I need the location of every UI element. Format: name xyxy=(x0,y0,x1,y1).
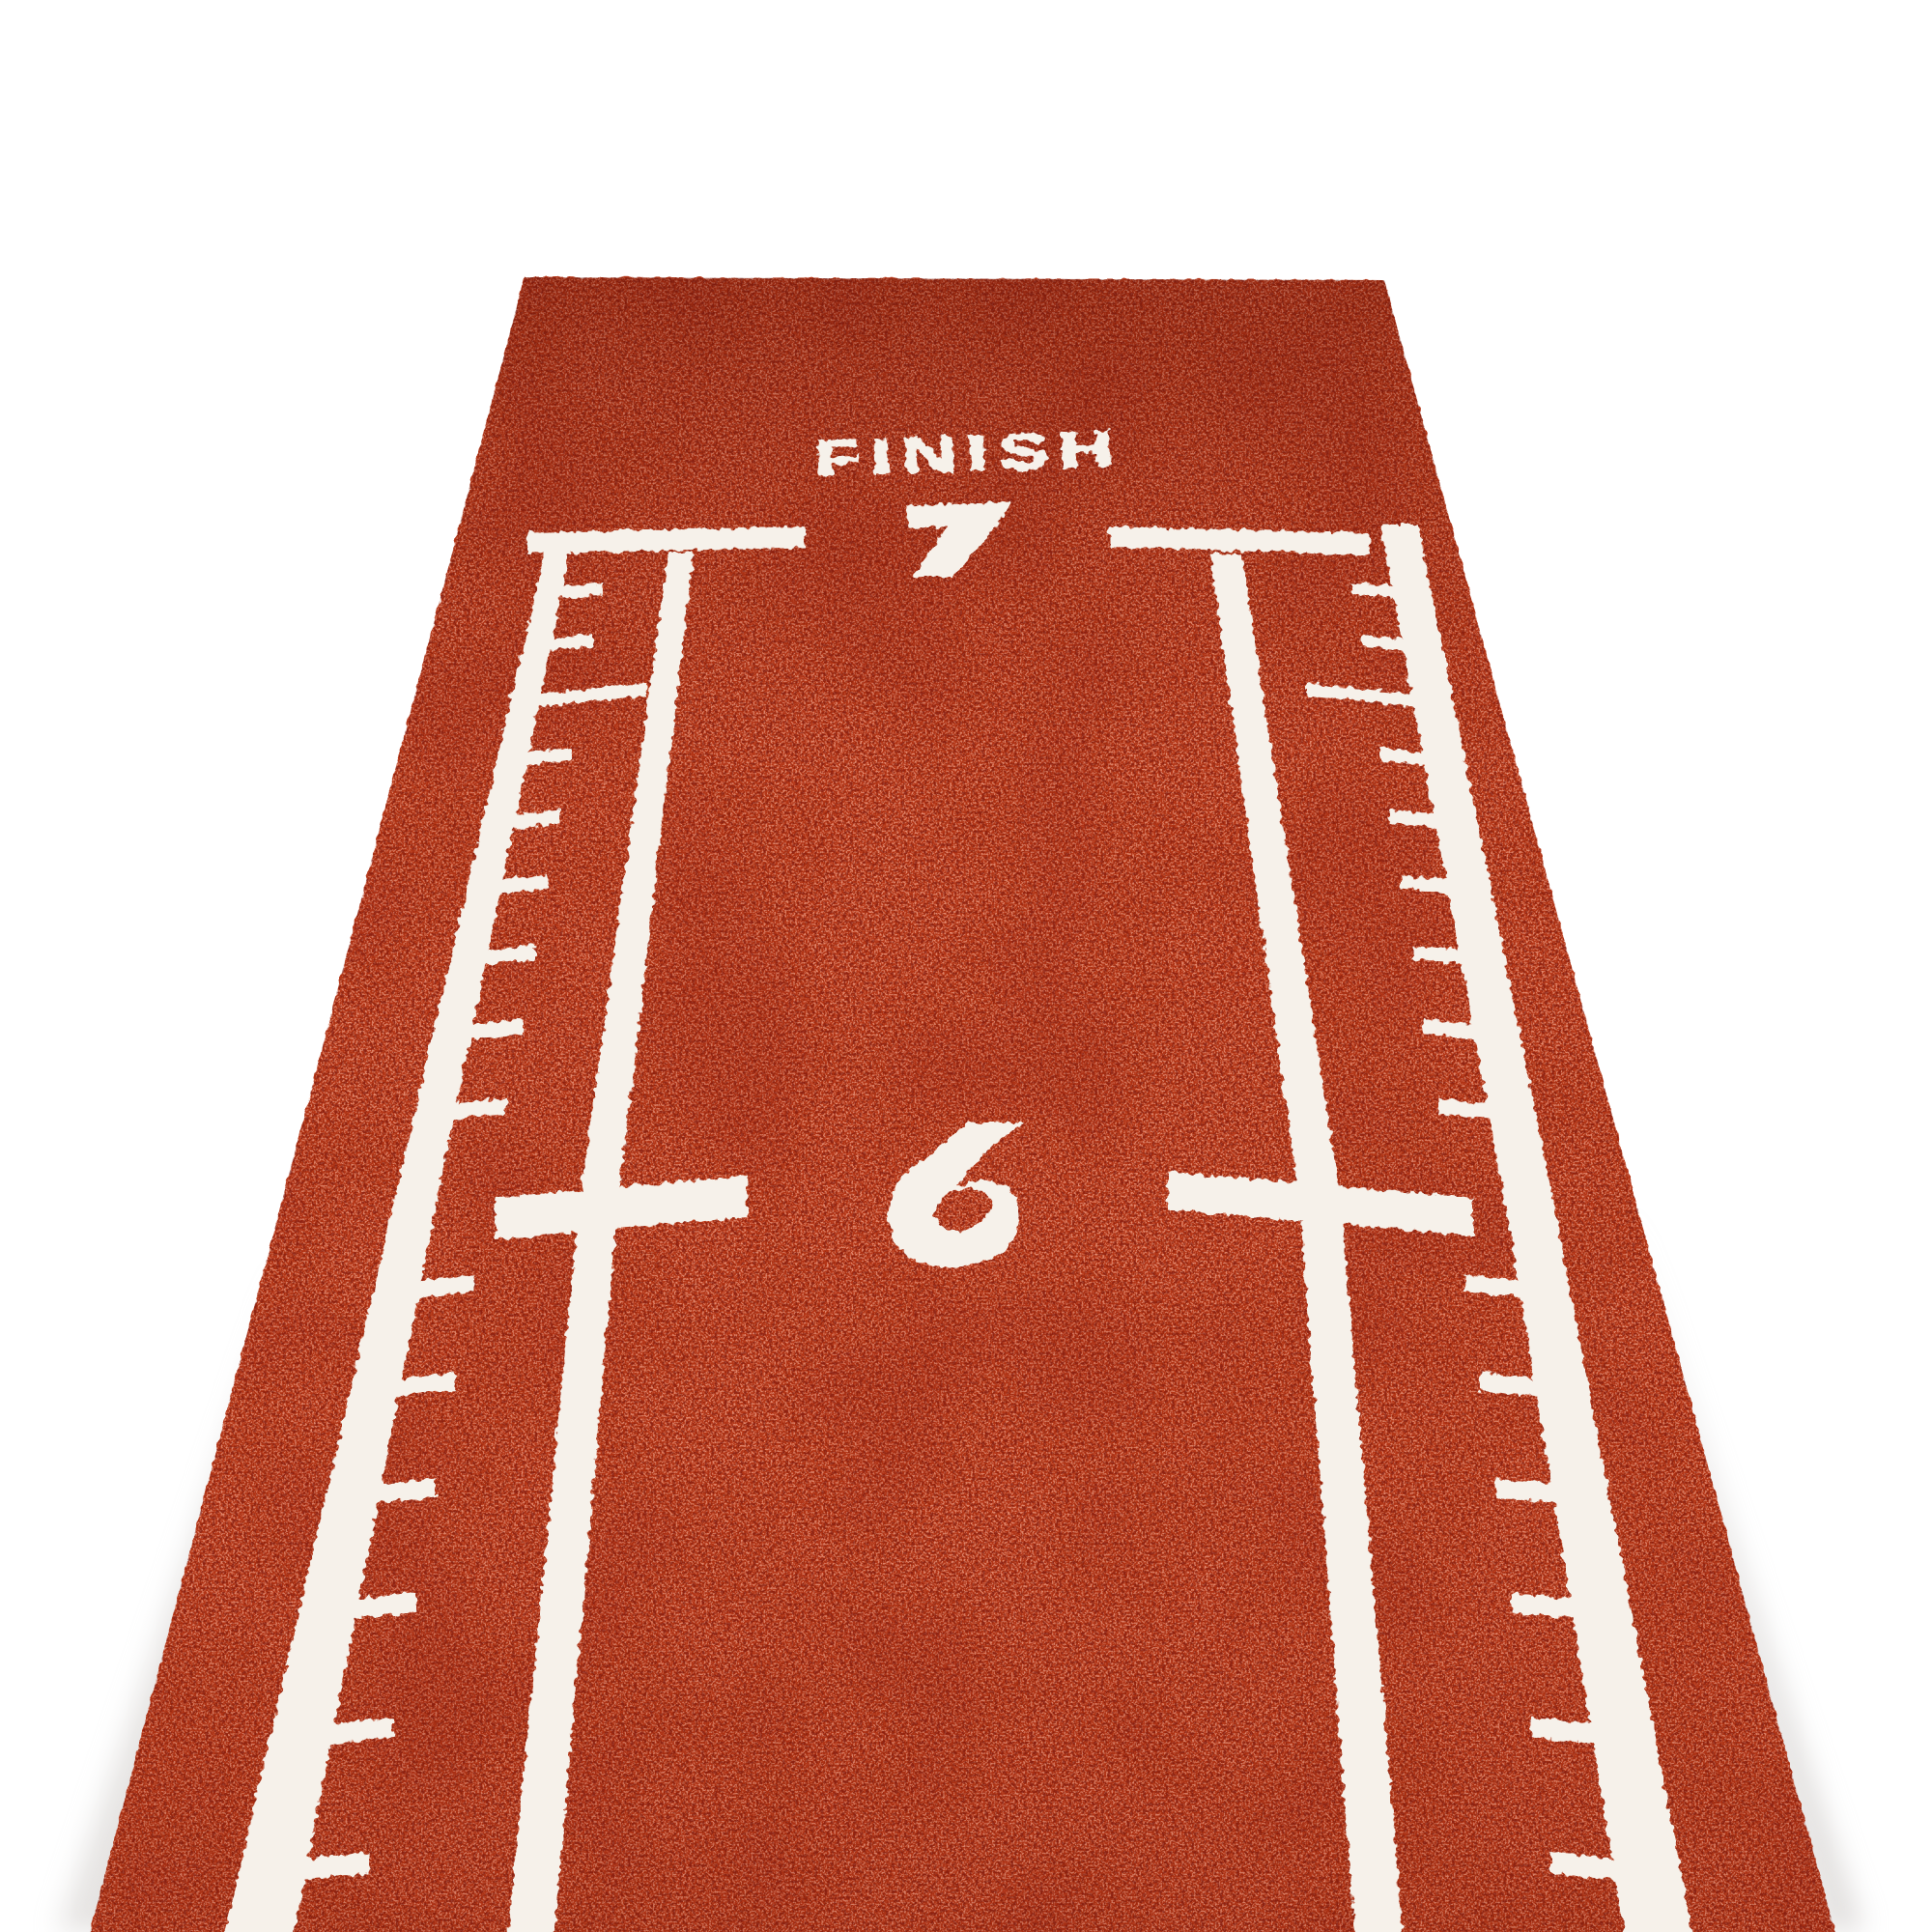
svg-text:FINISH: FINISH xyxy=(813,420,1124,486)
